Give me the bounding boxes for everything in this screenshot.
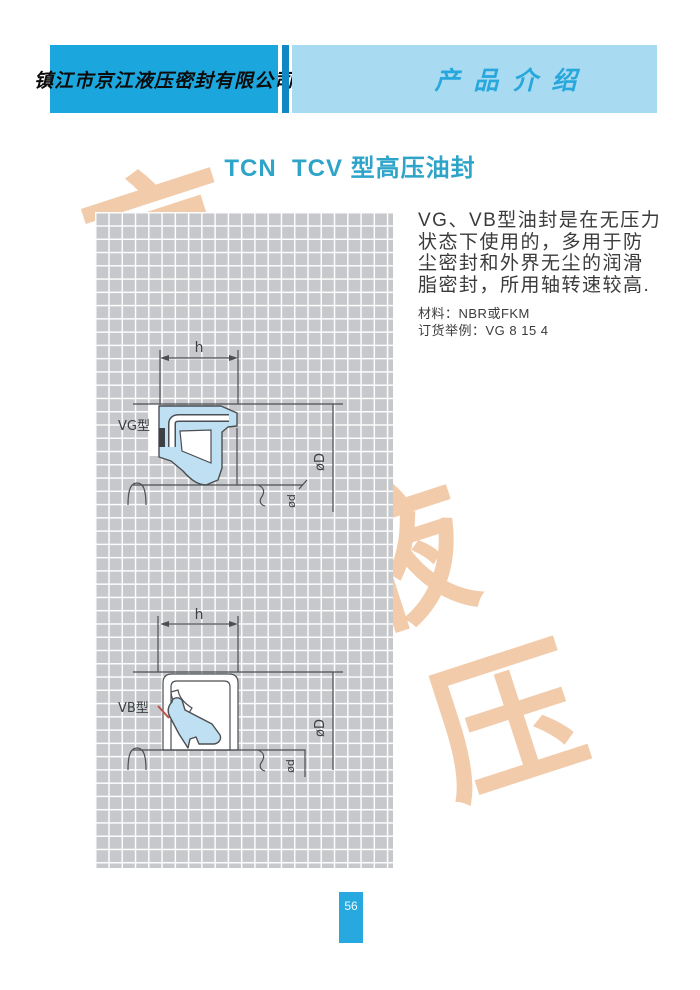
vg-type-label: VG型 bbox=[118, 419, 150, 434]
description-line: 尘密封和外界无尘的润滑 bbox=[418, 253, 663, 275]
vg-dim-h-label: h bbox=[195, 340, 204, 356]
catalog-page: 镇江市京江液压密封有限公司 产品介绍 京 江 液 压 TCN TCV 型高压油封 bbox=[0, 0, 700, 990]
header-divider bbox=[282, 45, 289, 113]
section-title: 产品介绍 bbox=[434, 61, 590, 97]
company-banner: 镇江市京江液压密封有限公司 bbox=[50, 45, 278, 113]
vg-break-arc bbox=[128, 483, 146, 505]
vb-shaft-line bbox=[133, 750, 305, 777]
vb-diagram: h VB型 øD ød bbox=[118, 607, 343, 777]
description-line: VG、VB型油封是在无压力 bbox=[418, 210, 663, 232]
vb-type-label: VB型 bbox=[118, 701, 149, 716]
seal-diagrams: h VG型 øD ød h bbox=[95, 212, 400, 872]
vg-od-label: øD bbox=[313, 453, 328, 471]
vg-spring bbox=[159, 428, 165, 447]
page-number: 56 bbox=[344, 899, 357, 913]
page-title: TCN TCV 型高压油封 bbox=[0, 148, 700, 183]
product-description: VG、VB型油封是在无压力 状态下使用的，多用于防 尘密封和外界无尘的润滑 脂密… bbox=[418, 210, 663, 296]
watermark-char-ya: 压 bbox=[412, 628, 601, 817]
vg-id-label: ød bbox=[285, 494, 298, 508]
section-banner: 产品介绍 bbox=[292, 45, 657, 113]
order-example-line: 订货举例：VG 8 15 4 bbox=[418, 322, 549, 339]
product-specs: 材料：NBR或FKM 订货举例：VG 8 15 4 bbox=[418, 305, 549, 339]
vb-break-arc bbox=[128, 748, 146, 770]
material-line: 材料：NBR或FKM bbox=[418, 305, 549, 322]
description-line: 状态下使用的，多用于防 bbox=[418, 232, 663, 254]
vg-diagram: h VG型 øD ød bbox=[118, 340, 343, 512]
page-number-box: 56 bbox=[339, 892, 363, 943]
description-line: 脂密封，所用轴转速较高. bbox=[418, 275, 663, 297]
vb-id-label: ød bbox=[284, 759, 297, 773]
vb-od-label: øD bbox=[313, 719, 328, 737]
vb-dim-h-label: h bbox=[195, 607, 204, 623]
company-name: 镇江市京江液压密封有限公司 bbox=[34, 66, 294, 93]
